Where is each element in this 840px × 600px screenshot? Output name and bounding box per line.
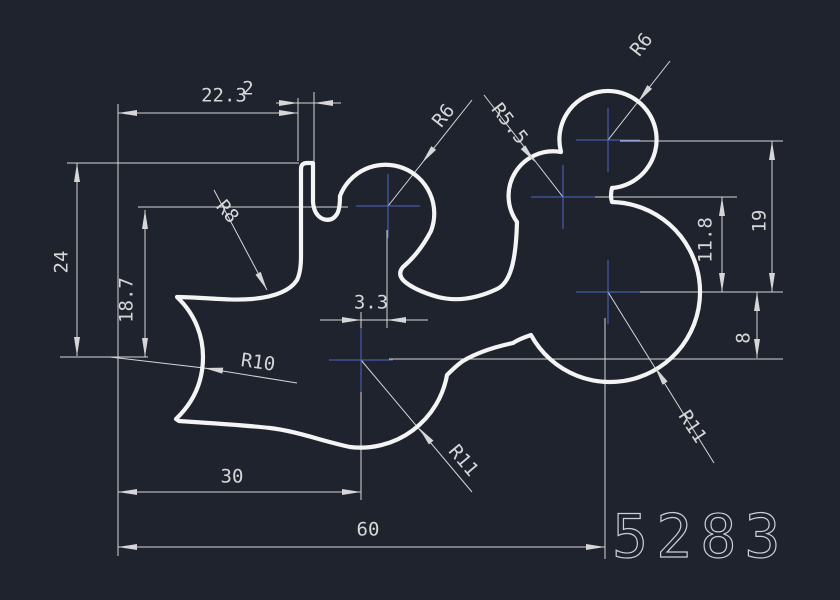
dimension-arrowhead: [769, 273, 775, 292]
dimension-arrowhead: [719, 197, 725, 216]
radius-r6-right: R6: [626, 29, 657, 61]
dimension-arrowhead: [74, 337, 80, 356]
radius-r10: R10: [240, 349, 277, 376]
dimension-arrowhead: [420, 146, 436, 165]
dim-width-60: 60: [357, 519, 380, 541]
radius-r8: R8: [212, 196, 244, 228]
dimension-arrowhead: [754, 339, 760, 358]
radius-r6-left: R6: [428, 100, 459, 132]
dimension-arrowhead: [314, 100, 333, 106]
dimension-arrowhead: [279, 100, 298, 106]
dim-width-30: 30: [221, 466, 244, 488]
dimension-arrowhead: [586, 544, 605, 550]
radius-r11-left: R11: [444, 440, 483, 480]
dimension-arrowhead: [118, 544, 137, 550]
dimension-arrowhead: [142, 338, 148, 357]
dim-height-24: 24: [51, 251, 73, 274]
dimension-arrowhead: [754, 292, 760, 311]
dimension-arrowhead: [118, 110, 137, 116]
dimension-arrowhead: [769, 141, 775, 160]
part-outline: [176, 91, 700, 448]
dimension-arrowhead: [255, 272, 269, 292]
cad-viewport: 22.322418.73.3306011.8198R8R6R5.5R6R10R1…: [0, 0, 840, 600]
dimension-arrowhead: [204, 365, 224, 374]
drawing-number: 5283: [612, 502, 789, 572]
dim-width-22-3: 22.3: [201, 85, 247, 107]
dimension-arrowhead: [118, 489, 137, 495]
dim-offset-3-3: 3.3: [354, 292, 388, 314]
dimension-arrowhead: [719, 273, 725, 292]
dim-height-18-7: 18.7: [116, 277, 138, 323]
dim-height-19: 19: [749, 210, 771, 233]
dimension-arrowhead: [74, 163, 80, 182]
dimension-arrowhead: [142, 210, 148, 229]
cad-drawing-canvas[interactable]: 22.322418.73.3306011.8198R8R6R5.5R6R10R1…: [0, 0, 840, 600]
dim-height-8: 8: [733, 332, 755, 343]
dim-slot-2: 2: [242, 78, 253, 100]
dimension-arrowhead: [342, 489, 361, 495]
radius-r11-right: R11: [674, 406, 711, 447]
dimension-arrowhead: [342, 317, 361, 323]
radius-r5-5: R5.5: [487, 99, 533, 149]
dimension-arrowhead: [387, 317, 406, 323]
dim-height-11-8: 11.8: [695, 217, 717, 263]
dimension-line: [110, 357, 204, 368]
dimension-arrowhead: [279, 110, 298, 116]
